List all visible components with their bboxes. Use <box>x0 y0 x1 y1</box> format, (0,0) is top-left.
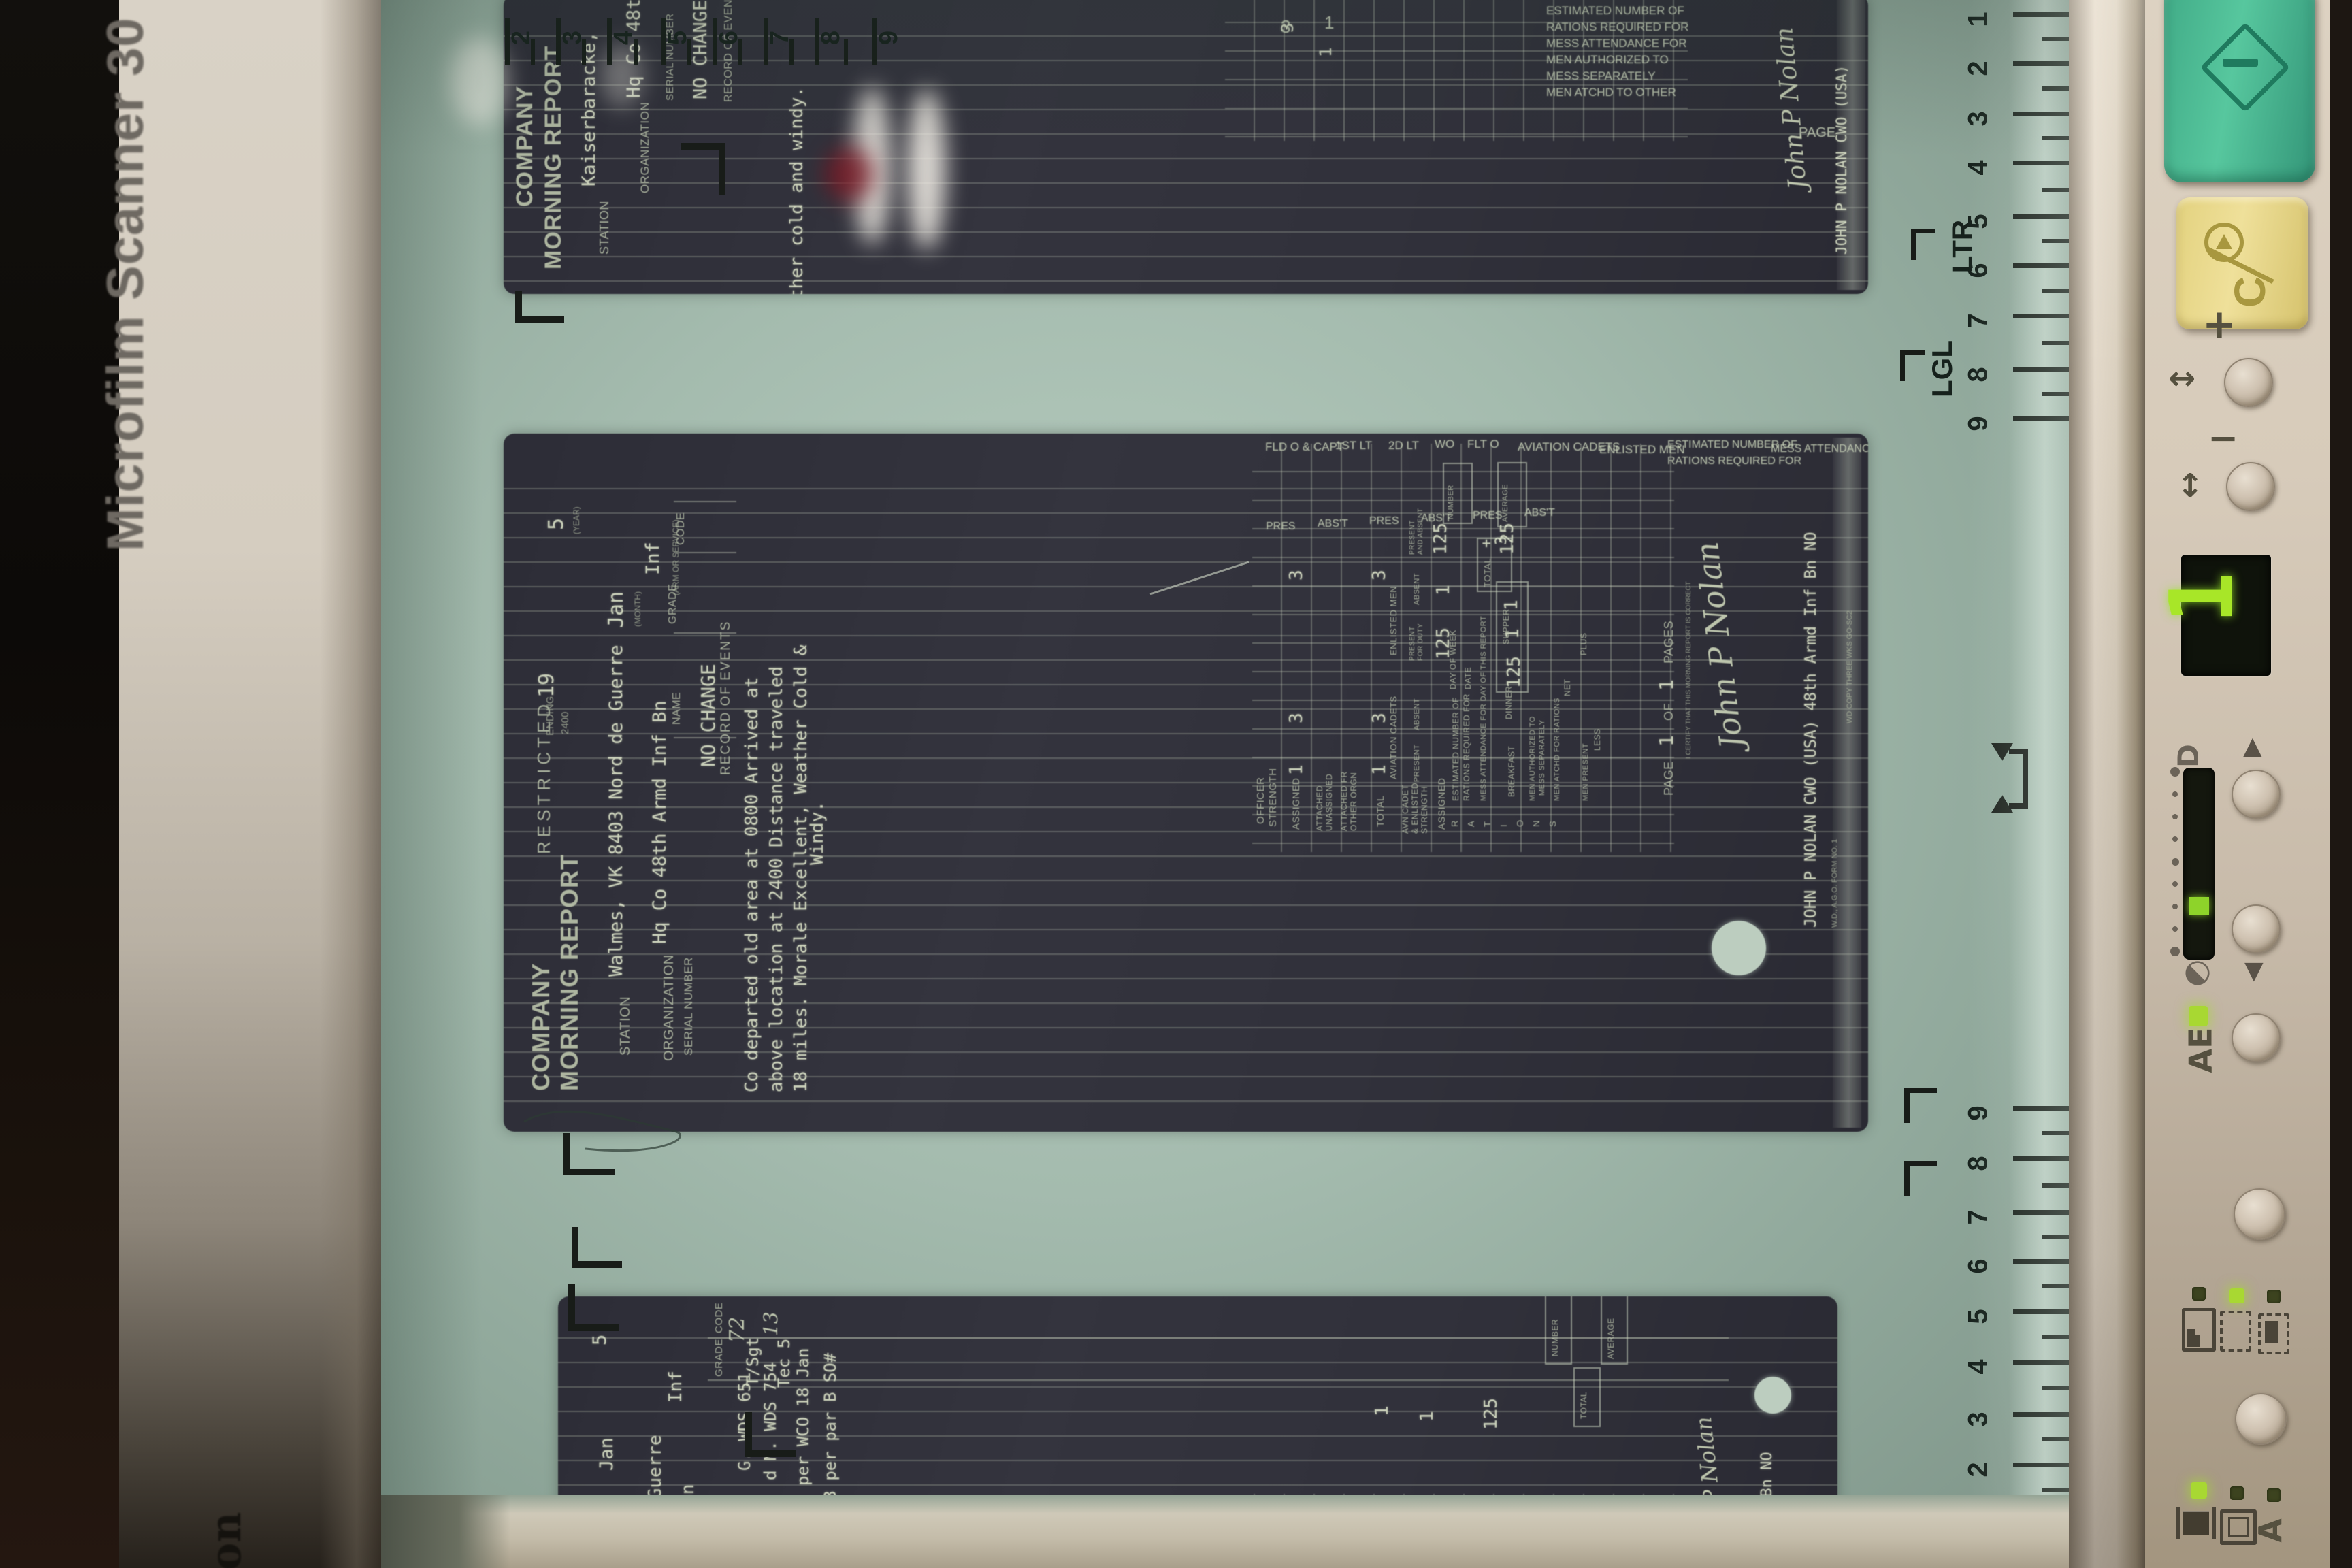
density-scale-dot <box>2172 836 2178 842</box>
clear-stop-icon: C <box>2193 216 2288 312</box>
zoom-in-button[interactable] <box>2224 358 2273 407</box>
polarity-led-positive <box>2230 1486 2244 1500</box>
page-counter-display: 1 <box>2181 555 2271 676</box>
zoom-minus-label: − <box>2208 416 2238 459</box>
zoom-out-button[interactable] <box>2226 462 2275 511</box>
image-shift-h-icon: ↔ <box>2168 359 2195 397</box>
polarity-led-negative <box>2191 1482 2207 1499</box>
ae-button[interactable] <box>2232 1013 2281 1062</box>
density-scale-dot <box>2172 926 2178 932</box>
frame-mode-led-2 <box>2229 1288 2244 1303</box>
model-label: Microfilm Scanner 30 <box>155 0 203 592</box>
density-d-label: D <box>2172 744 2205 768</box>
zoom-plus-label: + <box>2202 301 2236 348</box>
density-scale-dot <box>2172 814 2178 819</box>
viewer-screen: COMPANYMORNING REPORTSTATIONKaiserbarack… <box>381 0 2069 1568</box>
centered-frame-icon <box>2258 1313 2289 1354</box>
frame-mode-button[interactable] <box>2234 1188 2285 1240</box>
polarity-button[interactable] <box>2235 1393 2287 1445</box>
screen-shading <box>381 0 2069 1568</box>
brand-logo: on <box>250 1489 318 1568</box>
density-scale-dot <box>2172 904 2178 909</box>
density-up-marker: ▲ <box>2243 732 2262 760</box>
microfilm-scanner-photo: Microfilm Scanner 30 on COMPANYMORNING R… <box>0 0 2352 1568</box>
screen-bottom-bezel <box>381 1494 2069 1568</box>
density-scale-dot <box>2170 767 2180 777</box>
partial-frame-icon <box>2182 1308 2216 1352</box>
polarity-led-auto <box>2267 1488 2281 1502</box>
counter-digit: 1 <box>2152 572 2253 624</box>
auto-frame-icon <box>2220 1311 2251 1352</box>
bezel-shadow <box>381 1494 510 1568</box>
background-right <box>2330 0 2352 1568</box>
negative-film-icon <box>2176 1507 2216 1539</box>
density-slider[interactable] <box>2183 768 2215 960</box>
start-bar-icon <box>2223 59 2258 67</box>
auto-polarity-label: A <box>2252 1518 2289 1543</box>
ae-led <box>2189 1006 2208 1026</box>
image-shift-v-icon: ↕ <box>2176 467 2204 505</box>
density-down-marker: ▼ <box>2244 957 2264 985</box>
ae-label: AE <box>2183 1027 2219 1073</box>
density-scale-dot <box>2172 881 2178 887</box>
frame-mode-led-1 <box>2192 1287 2206 1301</box>
frame-mode-led-3 <box>2267 1290 2281 1303</box>
density-up-button[interactable] <box>2232 770 2281 819</box>
density-scale-dot <box>2172 791 2178 797</box>
screen-right-bezel <box>2069 0 2145 1568</box>
density-scale-dot <box>2172 858 2179 866</box>
density-scale-dot <box>2170 947 2180 956</box>
density-down-button[interactable] <box>2232 904 2281 953</box>
density-indicator <box>2189 897 2209 915</box>
